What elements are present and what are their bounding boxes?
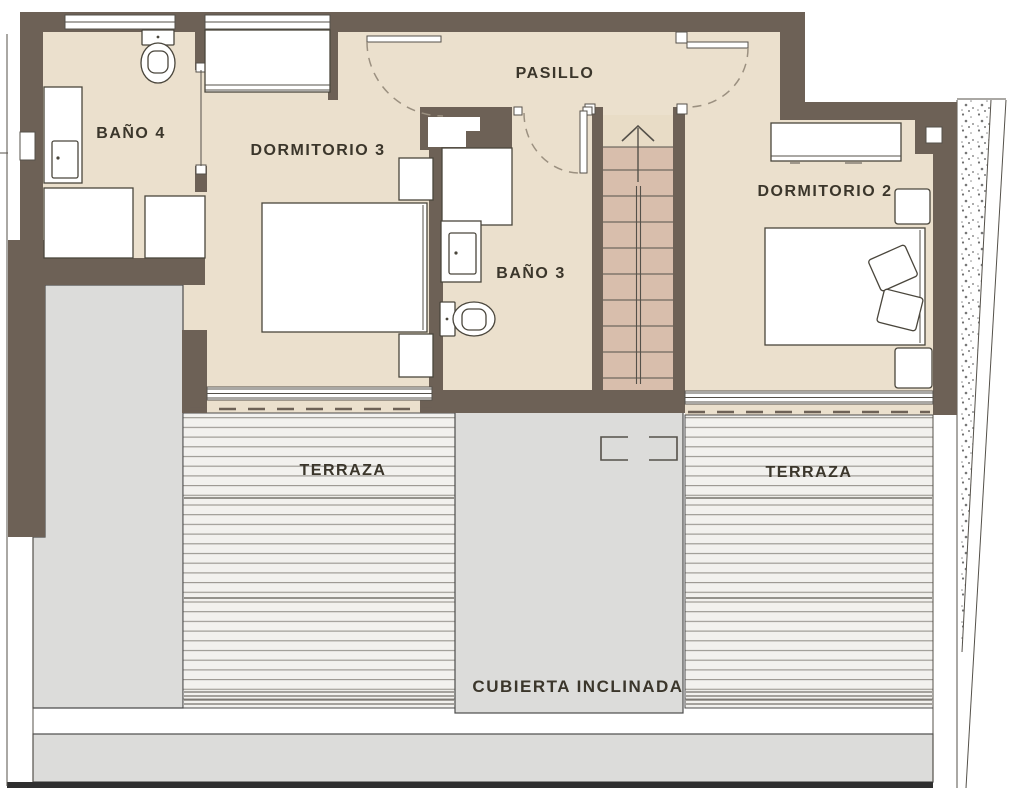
nightstand [399, 334, 433, 377]
door-jamb [196, 165, 206, 174]
nightstand [399, 158, 433, 200]
toilet-icon [440, 302, 495, 336]
terrace-left [183, 413, 455, 708]
lower-roof-band [33, 734, 933, 782]
floor-plan-drawing: BAÑO 4 DORMITORIO 3 PASILLO BAÑO 3 DORMI… [0, 0, 1017, 800]
room-label-dormitorio2: DORMITORIO 2 [757, 183, 892, 200]
door-jamb [514, 107, 522, 115]
terrace-right [685, 415, 933, 708]
inclined-roof-slab [455, 412, 683, 713]
room-label-bano3: BAÑO 3 [496, 262, 565, 282]
stair-treads [603, 147, 673, 390]
pillar-square [926, 127, 942, 143]
room-label-cubierta: CUBIERTA INCLINADA [472, 677, 683, 696]
wall-dormitorio2-top [780, 102, 957, 120]
door-jamb [677, 104, 687, 114]
nightstand [895, 348, 932, 388]
room-label-pasillo: PASILLO [516, 65, 595, 82]
wardrobe [771, 123, 901, 163]
room-label-terraza-left: TERRAZA [300, 462, 387, 479]
flat-roof-area-left [33, 285, 183, 708]
staircase [603, 115, 673, 390]
shower-tray [442, 148, 512, 225]
terrace-right-deck [685, 415, 933, 708]
door-jamb [676, 32, 687, 43]
wall-stair-right [673, 107, 685, 390]
nightstand [895, 189, 930, 224]
terrace-left-deck [183, 413, 455, 708]
sink-icon [441, 221, 481, 282]
wall-stair-left [592, 107, 603, 390]
floor-plan: BAÑO 4 DORMITORIO 3 PASILLO BAÑO 3 DORMI… [0, 0, 1017, 800]
right-plot-edge [957, 99, 1006, 788]
sink-icon [52, 141, 78, 178]
room-label-terraza-right: TERRAZA [766, 464, 853, 481]
niche-left-wall [20, 132, 35, 160]
shower-tray [44, 188, 133, 258]
bed [262, 203, 427, 332]
wall-bottom-bano3 [420, 390, 685, 413]
wall-dormitorio2-right [933, 120, 957, 415]
closet [145, 196, 205, 258]
plot-boundary-bottom [7, 782, 933, 788]
wall-dormitorio3-left-stub [182, 330, 207, 413]
inclined-roof [455, 412, 683, 713]
wardrobe [205, 30, 330, 92]
wall-left-upper [20, 12, 43, 240]
toilet-icon [141, 30, 175, 83]
room-label-dormitorio3: DORMITORIO 3 [250, 142, 385, 159]
room-label-bano4: BAÑO 4 [96, 122, 165, 142]
wall-below-bano4 [20, 258, 205, 285]
